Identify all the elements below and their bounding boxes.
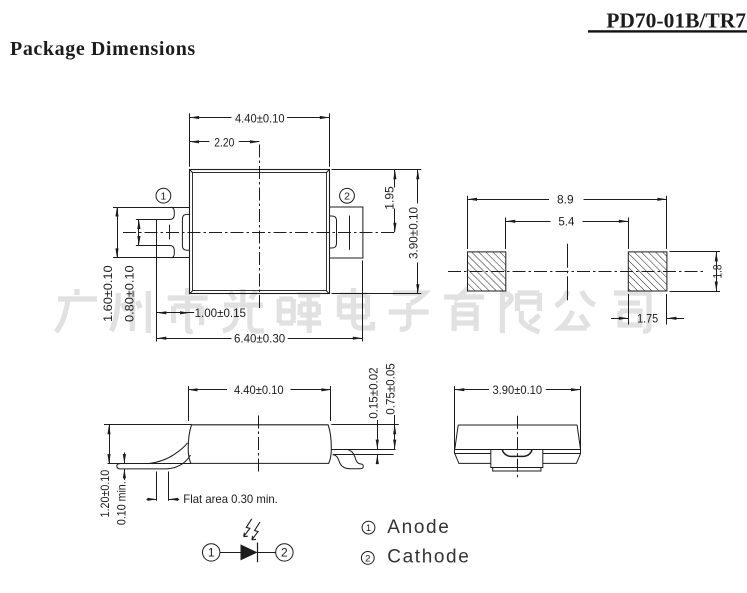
svg-text:2: 2 <box>281 546 288 560</box>
svg-text:2.20: 2.20 <box>214 136 234 150</box>
svg-text:3.90±0.10: 3.90±0.10 <box>492 383 542 397</box>
svg-text:Anode: Anode <box>387 517 449 538</box>
svg-text:5.4: 5.4 <box>558 215 574 229</box>
svg-text:4.40±0.10: 4.40±0.10 <box>234 383 284 397</box>
svg-text:1.8: 1.8 <box>711 264 725 278</box>
svg-text:0.80±0.10: 0.80±0.10 <box>123 265 137 322</box>
svg-text:1.95: 1.95 <box>382 186 396 210</box>
svg-text:1: 1 <box>160 190 166 202</box>
svg-text:1.60±0.10: 1.60±0.10 <box>101 265 115 322</box>
svg-text:3.90±0.10: 3.90±0.10 <box>406 207 420 259</box>
svg-text:1.20±0.10: 1.20±0.10 <box>98 469 112 517</box>
svg-text:0.75±0.05: 0.75±0.05 <box>384 363 398 415</box>
svg-text:1.00±0.15: 1.00±0.15 <box>195 306 247 320</box>
svg-text:2: 2 <box>344 191 350 203</box>
svg-text:1.75: 1.75 <box>637 312 658 326</box>
svg-text:Flat area 0.30 min.: Flat area 0.30 min. <box>183 492 277 506</box>
svg-text:2: 2 <box>365 553 370 564</box>
svg-text:PD70-01B/TR7: PD70-01B/TR7 <box>606 9 746 33</box>
svg-text:0.15±0.02: 0.15±0.02 <box>366 367 380 418</box>
svg-text:4.40±0.10: 4.40±0.10 <box>235 111 285 125</box>
svg-text:Cathode: Cathode <box>387 546 469 567</box>
svg-text:Package Dimensions: Package Dimensions <box>10 38 196 60</box>
svg-text:6.40±0.30: 6.40±0.30 <box>234 331 286 345</box>
svg-text:1: 1 <box>208 546 215 560</box>
svg-text:8.9: 8.9 <box>557 193 574 207</box>
svg-text:0.10 min.: 0.10 min. <box>115 481 129 525</box>
svg-text:1: 1 <box>366 523 371 534</box>
